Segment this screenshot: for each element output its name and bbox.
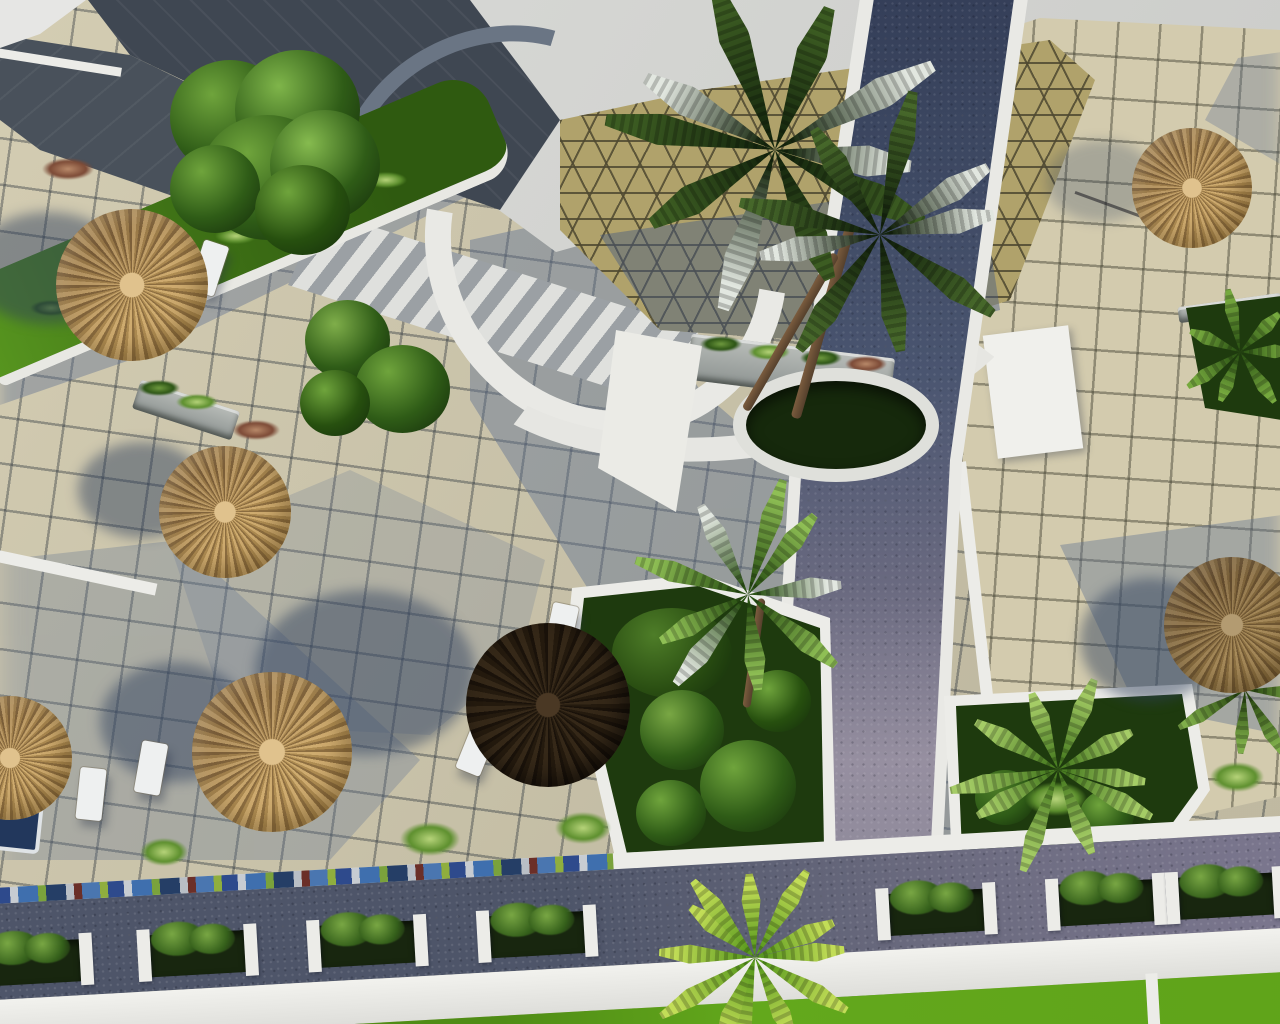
straw-parasol (56, 209, 208, 361)
road-planter (875, 884, 997, 939)
tree-canopy (255, 165, 350, 255)
fern-bush (300, 370, 370, 436)
road-planter (1165, 868, 1280, 923)
bed-shrub (612, 608, 732, 698)
roadside-sprig (140, 838, 188, 866)
bed-shrub (636, 780, 706, 846)
roadside-sprig (555, 812, 611, 844)
planter-post (982, 882, 998, 935)
red-grass-tuft (42, 158, 94, 180)
sun-lounger (75, 767, 106, 821)
straw-parasol (192, 672, 352, 832)
red-grass-tuft (232, 420, 280, 440)
planter-post (413, 914, 429, 967)
roadside-sprig (400, 822, 460, 856)
dark-parasol (466, 623, 630, 787)
road-planter (1045, 875, 1167, 930)
tree-canopy (170, 145, 260, 233)
planter-post (78, 933, 94, 986)
grass-tuft (176, 394, 218, 410)
road-planter (0, 935, 94, 990)
roadside-sprig (1210, 762, 1264, 792)
road-planter (306, 916, 428, 971)
bed-shrub (700, 740, 796, 832)
straw-parasol (1132, 128, 1252, 248)
render-scene (0, 0, 1280, 1024)
fern-bush (355, 345, 450, 433)
straw-parasol (159, 446, 291, 578)
road-planter (476, 906, 598, 961)
grass-tuft (138, 380, 180, 396)
road-planter (136, 925, 258, 980)
grass-tuft (700, 336, 742, 352)
planter-post (243, 923, 259, 976)
planter-post (583, 904, 599, 957)
